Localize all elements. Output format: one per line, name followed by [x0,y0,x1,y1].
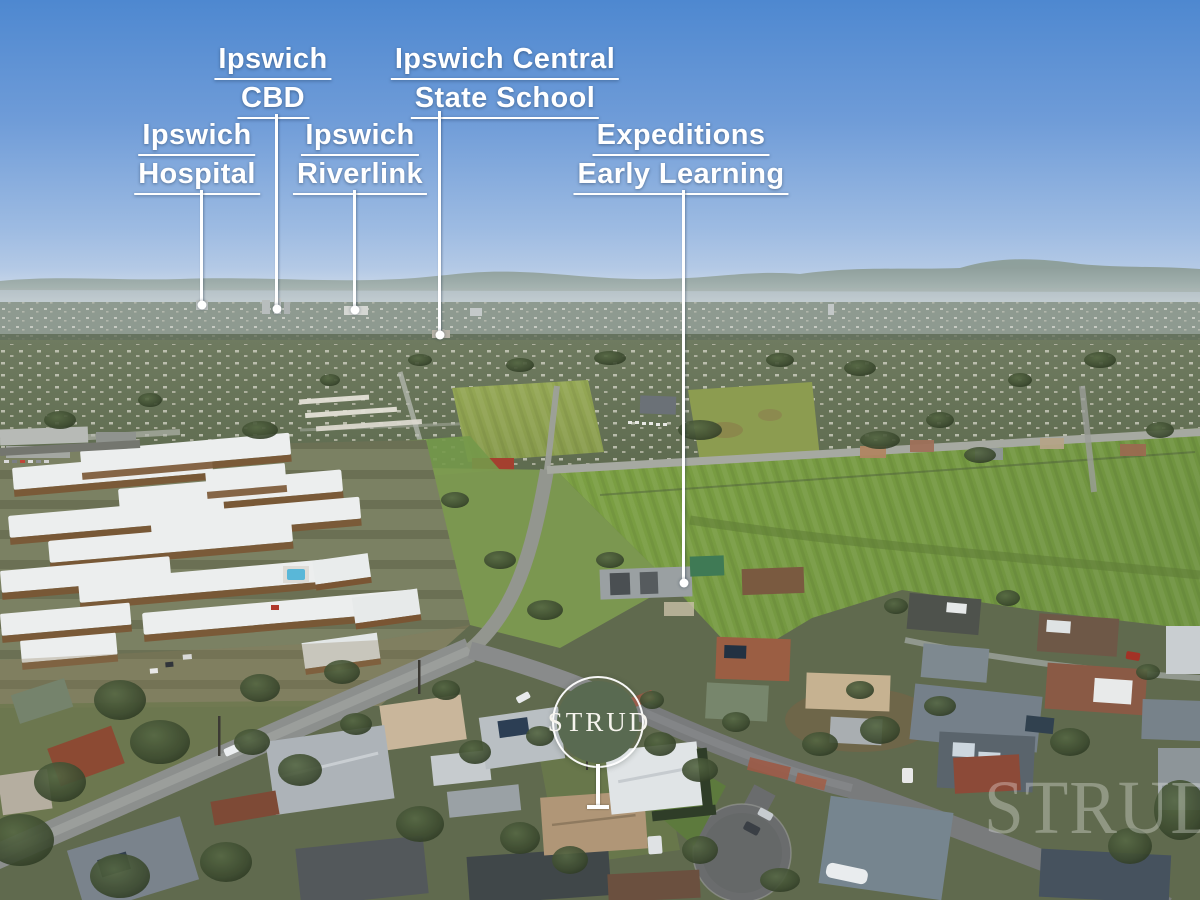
aerial-photo-scene: Ipswich CBD Ipswich Central State School… [0,0,1200,900]
leader-line [353,190,356,311]
callout-label: Expeditions Early Learning [573,117,788,195]
leader-line [200,190,203,306]
leader-dot-icon [351,306,360,315]
leader-line [682,190,685,584]
callout-label-line2: CBD [237,83,309,119]
callout-label-line1: Ipswich [138,120,255,156]
callout-label-line2: Early Learning [573,159,788,195]
strud-pointer-line [596,764,600,808]
callout-label: Ipswich Riverlink [293,117,427,195]
callout-label: Ipswich Hospital [134,117,260,195]
callout-label: Ipswich CBD [214,41,331,119]
leader-line [275,114,278,310]
callout-label: Ipswich Central State School [391,41,619,119]
leader-dot-icon [436,331,445,340]
strud-pointer-cap [587,805,609,809]
callout-label-line1: Ipswich [214,44,331,80]
callout-label-line1: Expeditions [593,120,770,156]
strud-badge-text: STRUD [545,707,652,738]
callout-label-line2: Riverlink [293,159,427,195]
leader-line [438,111,441,336]
callout-label-line1: Ipswich [301,120,418,156]
leader-dot-icon [198,301,207,310]
callout-label-line1: Ipswich Central [391,44,619,80]
strud-watermark: STRUD [984,770,1200,846]
callout-label-line2: Hospital [134,159,260,195]
leader-dot-icon [680,579,689,588]
leader-dot-icon [273,305,282,314]
strud-badge: STRUD [552,676,644,768]
